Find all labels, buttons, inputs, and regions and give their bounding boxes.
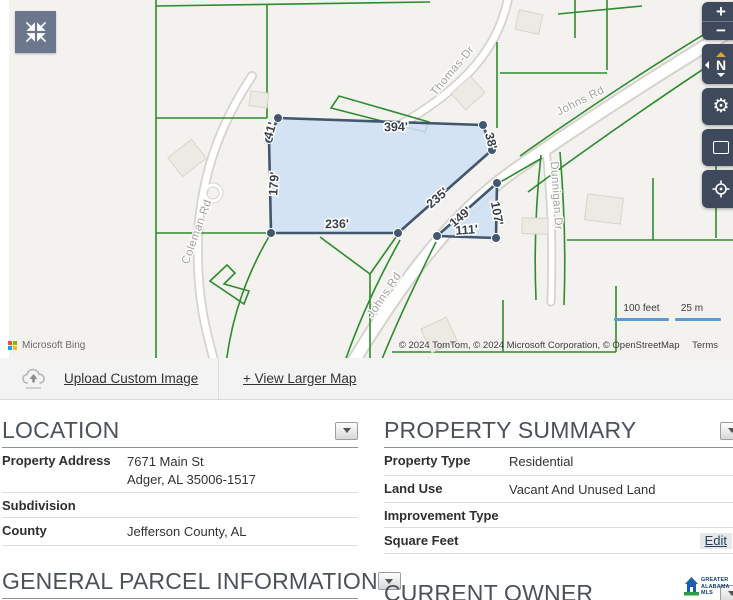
mls-logo-text: GREATER ALABAMA MLS [701, 577, 730, 596]
location-header: LOCATION [2, 417, 358, 448]
property-address-value: 7671 Main St Adger, AL 35006-1517 [127, 453, 358, 488]
scale-meters-bar [675, 318, 721, 321]
crosshair-icon [712, 180, 730, 198]
map-copyright: © 2024 TomTom, © 2024 Microsoft Corporat… [399, 340, 718, 351]
compass-control[interactable]: N [702, 44, 733, 84]
zoom-control: + − [702, 2, 733, 40]
land-use-label: Land Use [384, 481, 509, 496]
general-parcel-header: GENERAL PARCEL INFORMATION [2, 568, 358, 599]
county-label: County [2, 523, 127, 538]
chevron-down-icon [728, 428, 733, 433]
scale-feet-bar [614, 318, 669, 321]
upload-custom-image-label: Upload Custom Image [64, 371, 198, 386]
dim-left: 179' [266, 171, 282, 196]
mls-line2: ALABAMA [701, 584, 730, 590]
row-property-type: Property Type Residential [384, 448, 733, 476]
property-summary-title: PROPERTY SUMMARY [384, 417, 720, 444]
mls-line3: MLS [701, 590, 713, 596]
row-square-feet: Square Feet Edit [384, 528, 733, 554]
dim-tri-bottom: 111' [455, 222, 478, 238]
property-details: LOCATION Property Address 7671 Main St A… [0, 400, 733, 600]
section-location: LOCATION Property Address 7671 Main St A… [2, 417, 358, 546]
zoom-out-button[interactable]: − [702, 21, 733, 41]
section-current-owner: CURRENT OWNER [384, 580, 733, 600]
compass-down-arrow-icon [717, 73, 725, 77]
section-general-parcel: GENERAL PARCEL INFORMATION Parcel ID/Tax… [2, 568, 358, 600]
zoom-in-button[interactable]: + [702, 2, 733, 21]
map-left-margin [0, 0, 9, 358]
chevron-down-icon [343, 428, 351, 433]
current-owner-title: CURRENT OWNER [384, 580, 720, 600]
land-use-value: Vacant And Unused Land [509, 481, 733, 499]
scale-feet-label: 100 feet [614, 303, 669, 314]
upload-custom-image-button[interactable]: Upload Custom Image [0, 358, 219, 399]
mls-line1: GREATER [701, 577, 728, 583]
section-property-summary: PROPERTY SUMMARY Property Type Residenti… [384, 417, 733, 554]
property-type-label: Property Type [384, 453, 509, 468]
county-value: Jefferson County, AL [127, 523, 358, 541]
bing-attribution-text: Microsoft Bing [22, 340, 85, 351]
square-feet-edit-link[interactable]: Edit [700, 533, 732, 549]
property-summary-collapse-button[interactable] [720, 422, 733, 440]
location-collapse-button[interactable] [335, 422, 358, 440]
collapse-map-button[interactable] [15, 11, 56, 53]
scale-meters-label: 25 m [669, 303, 715, 314]
mls-house-icon [684, 576, 699, 596]
square-feet-label: Square Feet [384, 533, 509, 548]
general-parcel-title: GENERAL PARCEL INFORMATION [2, 568, 378, 595]
address-line1: 7671 Main St [127, 454, 204, 469]
terms-link[interactable]: Terms [692, 340, 718, 351]
right-column: PROPERTY SUMMARY Property Type Residenti… [384, 417, 733, 600]
map-toolbar: Upload Custom Image + View Larger Map [0, 358, 733, 400]
property-address-label: Property Address [2, 453, 127, 468]
row-land-use: Land Use Vacant And Unused Land [384, 476, 733, 504]
location-title: LOCATION [2, 417, 335, 444]
row-county: County Jefferson County, AL [2, 518, 358, 546]
dim-top: 394' [384, 120, 408, 134]
improvement-type-label: Improvement Type [384, 508, 509, 523]
copyright-text: © 2024 TomTom, © 2024 Microsoft Corporat… [399, 340, 680, 351]
bing-attribution: Microsoft Bing [8, 340, 85, 351]
row-property-address: Property Address 7671 Main St Adger, AL … [2, 448, 358, 493]
collapse-arrows-icon [24, 20, 48, 44]
greater-alabama-mls-logo: GREATER ALABAMA MLS [684, 576, 730, 596]
microsoft-logo-icon [8, 341, 17, 350]
property-type-value: Residential [509, 453, 733, 471]
parcel-map[interactable]: Thomas-Dr Johns Rd Johns Rd Coleman Rd D… [0, 0, 733, 358]
cloud-upload-icon [20, 366, 52, 392]
rotate-left-icon[interactable] [705, 61, 709, 69]
row-improvement-type: Improvement Type [384, 503, 733, 528]
current-owner-header: CURRENT OWNER [384, 580, 733, 600]
dim-bottom: 236' [325, 217, 349, 231]
left-column: LOCATION Property Address 7671 Main St A… [2, 417, 358, 600]
locate-button[interactable] [702, 170, 733, 208]
map-scale: 100 feet 25 m [614, 303, 721, 321]
address-line2: Adger, AL 35006-1517 [127, 472, 256, 487]
gear-icon: ⚙ [712, 95, 729, 118]
rectangle-select-icon [713, 141, 729, 154]
view-larger-map-cell: + View Larger Map [219, 358, 356, 399]
row-subdivision: Subdivision [2, 493, 358, 518]
compass-label: N [716, 58, 726, 72]
map-view-button[interactable] [702, 129, 733, 166]
view-larger-map-link[interactable]: + View Larger Map [243, 371, 356, 386]
subdivision-label: Subdivision [2, 498, 127, 513]
property-detail-page: { "map": { "road_labels": { "thomas": "T… [0, 0, 733, 600]
compass-north-arrow-icon [716, 52, 726, 57]
map-settings-button[interactable]: ⚙ [702, 88, 733, 125]
property-summary-header: PROPERTY SUMMARY [384, 417, 733, 448]
